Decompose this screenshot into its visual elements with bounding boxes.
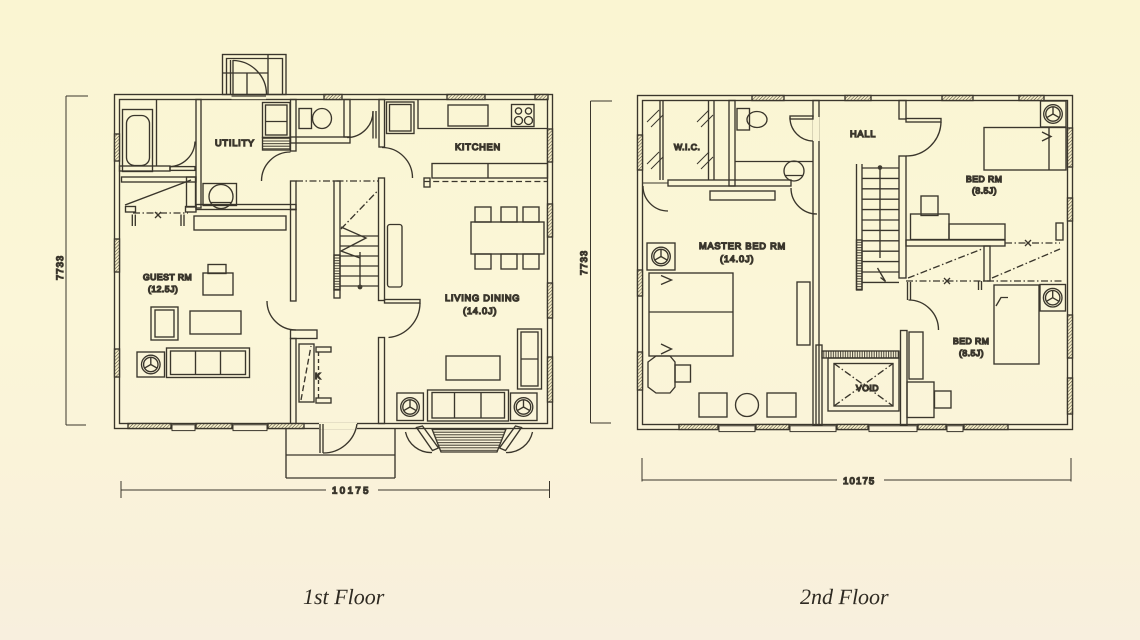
svg-text:7733: 7733 bbox=[55, 255, 66, 280]
svg-text:K: K bbox=[315, 371, 321, 381]
svg-text:(8.5J): (8.5J) bbox=[959, 348, 984, 358]
svg-text:LIVING DINING: LIVING DINING bbox=[445, 293, 520, 303]
svg-text:7733: 7733 bbox=[579, 250, 590, 275]
svg-text:(8.5J): (8.5J) bbox=[972, 186, 997, 196]
svg-text:BED RM: BED RM bbox=[953, 336, 989, 346]
svg-text:W.I.C.: W.I.C. bbox=[674, 142, 700, 152]
svg-text:UTILITY: UTILITY bbox=[215, 138, 255, 148]
svg-text:10175: 10175 bbox=[332, 486, 371, 497]
svg-text:HALL: HALL bbox=[850, 129, 876, 139]
svg-text:1st Floor: 1st Floor bbox=[303, 584, 385, 609]
svg-text:VOID: VOID bbox=[856, 383, 879, 393]
svg-text:GUEST RM: GUEST RM bbox=[143, 272, 192, 282]
svg-text:MASTER BED RM: MASTER BED RM bbox=[699, 241, 786, 251]
svg-text:10175: 10175 bbox=[843, 476, 875, 487]
svg-text:(14.0J): (14.0J) bbox=[720, 254, 754, 264]
svg-text:(14.0J): (14.0J) bbox=[463, 306, 497, 316]
svg-text:KITCHEN: KITCHEN bbox=[455, 142, 501, 152]
svg-text:2nd Floor: 2nd Floor bbox=[800, 584, 889, 609]
svg-text:BED RM: BED RM bbox=[966, 174, 1002, 184]
svg-text:(12.5J): (12.5J) bbox=[148, 284, 178, 294]
